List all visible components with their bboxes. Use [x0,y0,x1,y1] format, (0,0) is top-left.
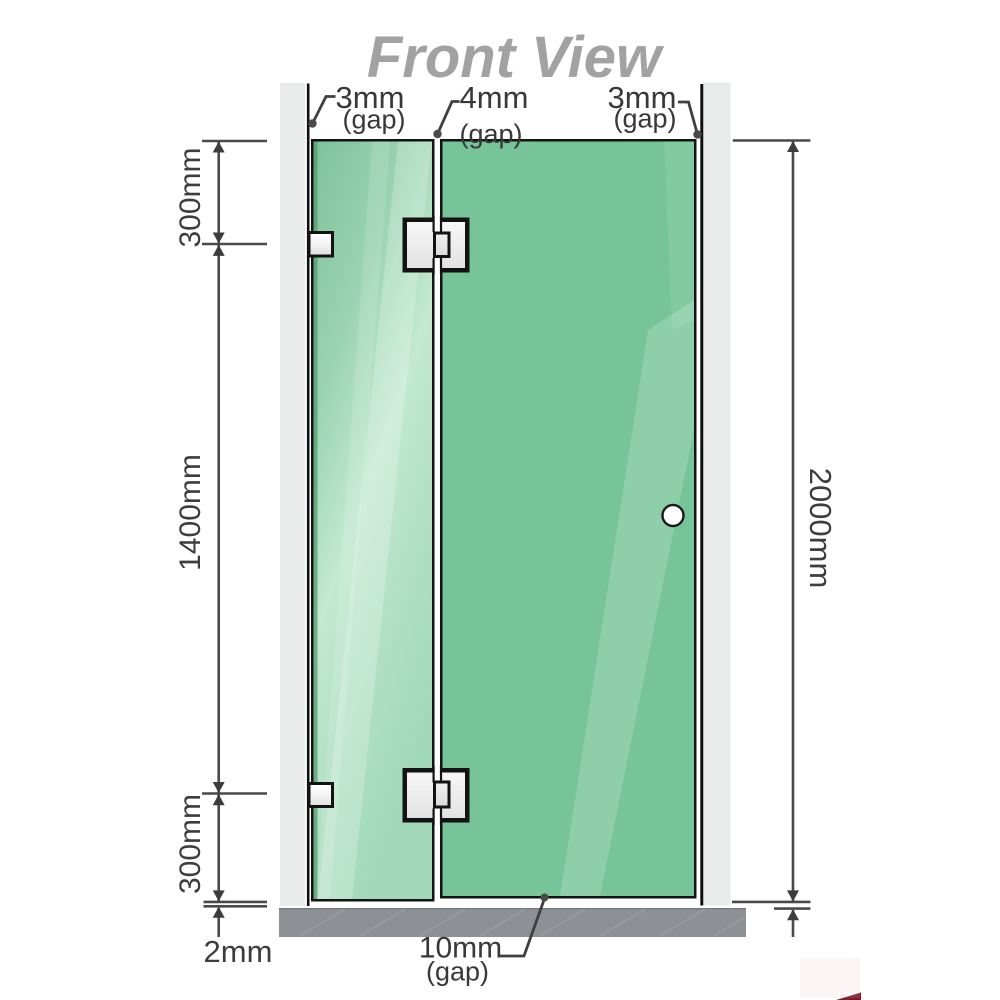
svg-text:2000mm: 2000mm [803,468,838,589]
svg-text:4mm: 4mm [460,80,529,115]
svg-text:(gap): (gap) [613,104,676,134]
svg-text:2mm: 2mm [204,934,273,969]
svg-text:300mm: 300mm [174,147,207,247]
svg-text:300mm: 300mm [174,794,207,894]
svg-text:1400mm: 1400mm [174,454,207,571]
svg-text:(gap): (gap) [459,119,522,149]
svg-text:(gap): (gap) [426,957,489,987]
svg-text:(gap): (gap) [342,105,405,135]
